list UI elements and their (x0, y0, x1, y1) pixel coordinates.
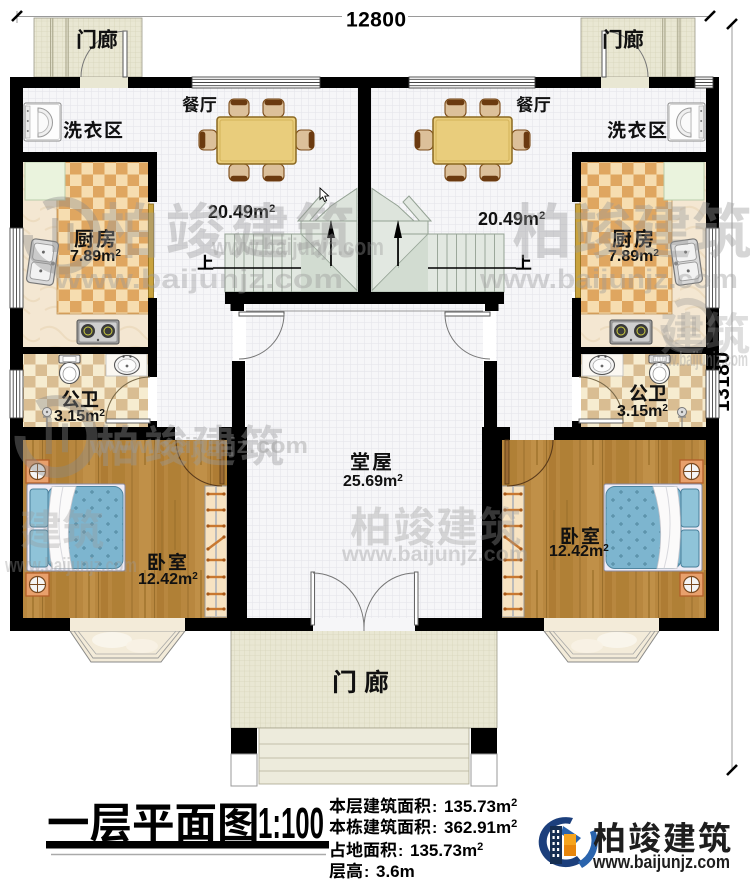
svg-text:362.91m2: 362.91m2 (444, 818, 517, 837)
svg-text:1:100: 1:100 (258, 799, 324, 848)
svg-text:3.6m: 3.6m (376, 862, 415, 881)
svg-text::: : (432, 820, 437, 837)
svg-text:20.49m2: 20.49m2 (478, 209, 545, 229)
svg-text:www.baijunjz.com: www.baijunjz.com (211, 234, 384, 261)
svg-text:www.baijunjz.com: www.baijunjz.com (649, 349, 748, 371)
svg-text::: : (432, 799, 437, 816)
svg-text:12.42m2: 12.42m2 (138, 571, 198, 588)
svg-text:12800: 12800 (346, 9, 406, 32)
svg-text:3.15m2: 3.15m2 (617, 403, 668, 420)
svg-text:www.baijunjz.com: www.baijunjz.com (54, 264, 343, 294)
svg-text:www.baijunjz.com: www.baijunjz.com (479, 264, 738, 294)
svg-text:12.42m2: 12.42m2 (549, 543, 609, 560)
svg-text::: : (364, 864, 369, 881)
svg-text:www.baijunjz.com: www.baijunjz.com (89, 433, 308, 458)
svg-text:135.73m2: 135.73m2 (444, 797, 517, 816)
svg-text:25.69m2: 25.69m2 (343, 473, 403, 490)
svg-text:135.73m2: 135.73m2 (410, 841, 483, 860)
svg-text:www.baijunjz.com: www.baijunjz.com (341, 543, 528, 566)
svg-text:www.baijunjz.com: www.baijunjz.com (4, 555, 137, 577)
svg-text::: : (398, 843, 403, 860)
svg-text:www.baijunjz.com: www.baijunjz.com (592, 852, 730, 872)
